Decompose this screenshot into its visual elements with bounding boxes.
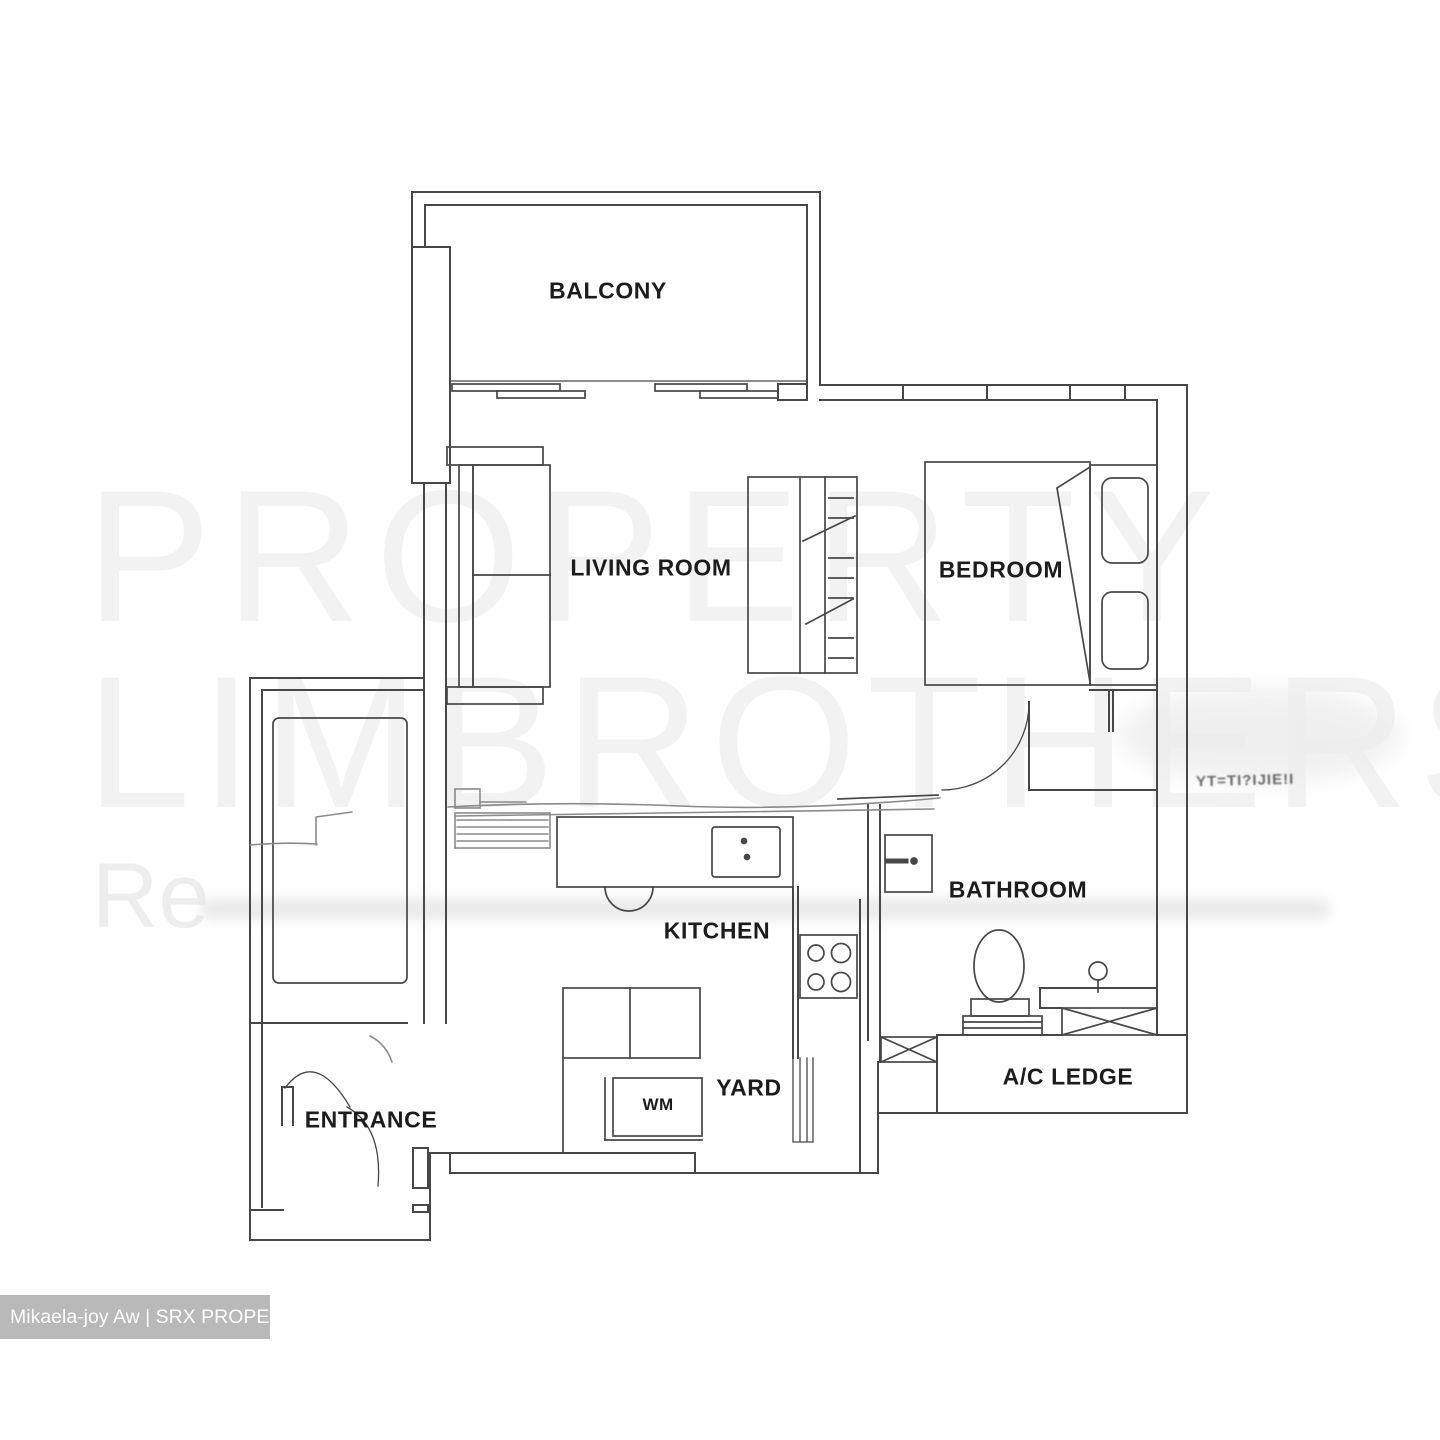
ac-crossed-box-right <box>1062 1008 1157 1035</box>
room-label-balcony: BALCONY <box>549 278 667 305</box>
bathroom-basin <box>885 835 932 892</box>
sofa <box>447 447 550 704</box>
bathroom-door-arc <box>942 702 1029 790</box>
credit-bar: Mikaela-joy Aw | SRX PROPERTY <box>0 1295 270 1339</box>
noise-text: YT=TI?IJIE!I <box>1196 771 1295 791</box>
stove <box>800 935 857 998</box>
tv-console <box>748 477 857 673</box>
balcony-sliding-doors <box>450 381 807 400</box>
room-label-bathroom: BATHROOM <box>949 877 1088 904</box>
room-label-kitchen: KITCHEN <box>664 918 770 945</box>
yard-louvers <box>793 1058 813 1142</box>
room-label-bedroom: BEDROOM <box>939 557 1063 584</box>
floor-plan-svg <box>0 0 1440 1440</box>
room-label-ac-ledge: A/C LEDGE <box>1003 1064 1134 1091</box>
room-label-entrance: ENTRANCE <box>305 1107 438 1134</box>
kitchen-sink <box>712 827 780 877</box>
floor-plan-page: PROPERTY LIMBROTHERS Re <box>0 0 1440 1440</box>
storage-unit <box>250 718 407 983</box>
kitchen-cabinets <box>563 988 702 1153</box>
room-label-yard: YARD <box>716 1075 781 1102</box>
room-label-living-room: LIVING ROOM <box>570 555 731 582</box>
ac-crossed-box-left <box>881 1037 937 1062</box>
kitchen-counter <box>557 817 793 911</box>
bedroom-window <box>903 385 1125 400</box>
room-label-wm: WM <box>642 1095 673 1115</box>
fridge-sketch <box>455 789 550 848</box>
toilet <box>963 930 1042 1035</box>
